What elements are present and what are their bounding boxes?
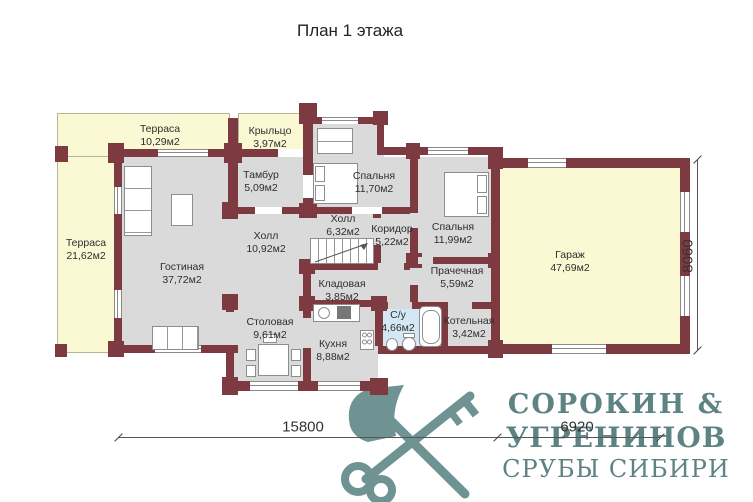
log-end (108, 143, 124, 163)
room-label-laundry: Прачечная5,59м2 (431, 265, 484, 291)
door-opening (303, 318, 311, 348)
door-opening (303, 175, 313, 198)
logo-company-name-1: СОРОКИН & (497, 388, 735, 421)
window (428, 147, 468, 155)
room-label-garage: Гараж47,69м2 (550, 249, 589, 275)
log-end (488, 340, 503, 358)
room-label-bedroom-2: Спальня11,99м2 (432, 221, 474, 247)
room-label-porch: Крыльцо3,97м2 (249, 125, 292, 151)
dining-table (258, 344, 289, 376)
room-label-living-room: Гостиная37,72м2 (160, 261, 204, 287)
wall (303, 348, 311, 381)
window (114, 187, 122, 214)
door-opening (388, 302, 412, 309)
dimension-line-bottom (118, 437, 660, 438)
door-opening (255, 207, 282, 214)
wall (114, 149, 122, 353)
dimension-line-right (697, 160, 698, 350)
bathtub-inner (422, 310, 440, 344)
window (114, 290, 122, 318)
door-opening (448, 302, 472, 309)
log-end (370, 378, 388, 395)
room-label-kitchen: Кухня8,88м2 (316, 338, 350, 364)
log-end (488, 151, 503, 169)
chair (291, 365, 301, 377)
chair (291, 349, 301, 361)
pillow (477, 175, 487, 193)
wall (494, 158, 690, 168)
room-label-bedroom-1: Спальня11,70м2 (353, 170, 395, 196)
coffee-table (171, 194, 193, 226)
window (322, 117, 358, 124)
stairs-arrow-icon (310, 236, 376, 266)
window (318, 381, 360, 391)
door-opening (410, 268, 418, 285)
garage-area (496, 162, 686, 350)
room-label-hall-big: Холл10,92м2 (246, 230, 285, 256)
dimension-garage-width: 6920 (560, 419, 593, 436)
wall (303, 149, 313, 175)
pillow (315, 185, 325, 201)
wall (228, 118, 238, 214)
chair (246, 349, 256, 361)
log-end (488, 253, 499, 268)
wall (226, 345, 234, 381)
log-end (406, 143, 420, 159)
dimension-right-height: 8060 (680, 239, 697, 272)
pillow (315, 166, 325, 182)
door-opening (418, 257, 433, 264)
window (158, 149, 208, 157)
log-end (55, 344, 67, 357)
room-label-storage: Кладовая3,85м2 (318, 278, 365, 304)
company-logo: СОРОКИН & УГРЕНИНОВ СРУБЫ СИБИРИ (497, 388, 735, 484)
room-label-corridor: Коридор5,22м2 (371, 223, 412, 249)
window (680, 192, 690, 232)
chair (246, 365, 256, 377)
pillow (477, 196, 487, 214)
window (528, 158, 566, 168)
room-label-dining: Столовая9,61м2 (247, 316, 294, 342)
toilet-bowl (402, 337, 416, 351)
log-end (222, 202, 238, 219)
room-label-terrace-left: Терраса21,62м2 (66, 237, 106, 263)
room-label-terrace-top: Терраса10,29м2 (140, 123, 180, 149)
washbasin (386, 338, 398, 351)
door-opening (378, 263, 404, 270)
floor-plan-canvas: План 1 этажа (0, 0, 753, 502)
log-end (373, 111, 388, 125)
wall (410, 285, 418, 302)
window (250, 381, 298, 391)
stove-icon (360, 330, 374, 350)
log-end (55, 146, 68, 162)
log-end (108, 341, 124, 357)
cooktop (337, 306, 351, 319)
log-end (224, 143, 242, 163)
door-opening (226, 312, 234, 345)
log-end (299, 103, 317, 121)
page-title: План 1 этажа (297, 21, 403, 41)
kitchen-sink (318, 307, 330, 319)
room-label-bathroom: С/у4,66м2 (381, 309, 415, 335)
log-end (299, 203, 317, 218)
logo-tagline: СРУБЫ СИБИРИ (497, 454, 735, 484)
room-label-hall-small: Холл6,32м2 (326, 213, 360, 239)
entry-steps (317, 128, 353, 154)
room-label-vestibule: Тамбур5,09м2 (243, 169, 279, 195)
window (680, 276, 690, 316)
window (552, 344, 606, 354)
sofa (124, 166, 152, 236)
log-end (222, 377, 238, 395)
dimension-total-width: 15800 (282, 419, 324, 436)
room-label-boiler: Котельная3,42м2 (444, 315, 495, 341)
axe-and-key-logo-icon (328, 382, 518, 502)
sofa (152, 326, 199, 350)
log-end (222, 294, 238, 310)
